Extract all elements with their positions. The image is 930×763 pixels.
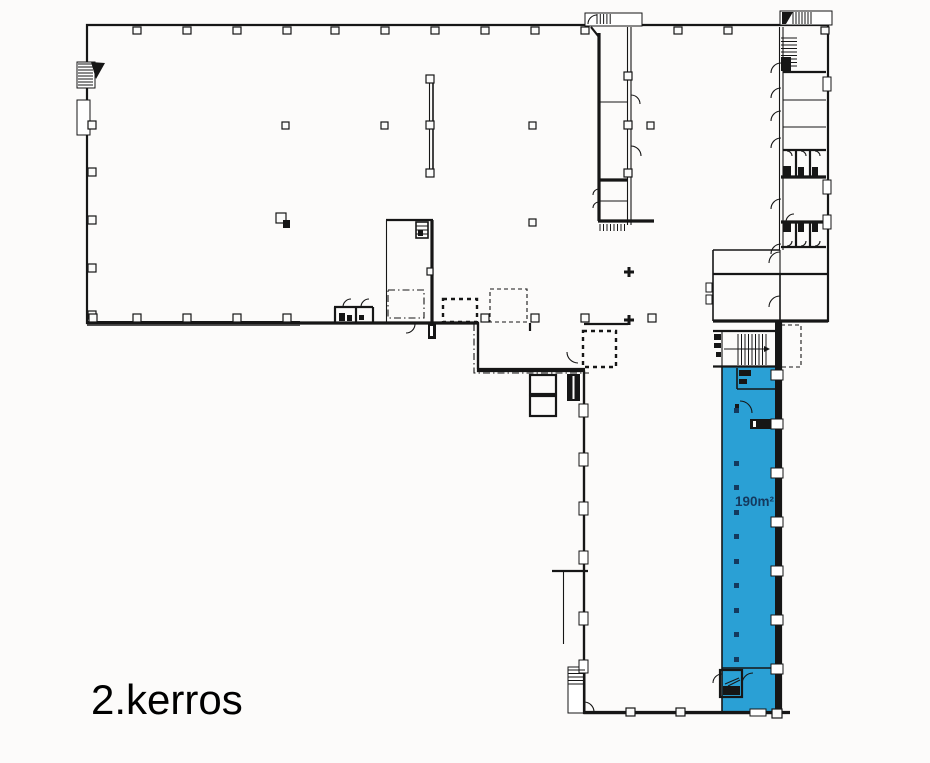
middle-room <box>386 75 436 339</box>
highlighted-unit[interactable] <box>722 367 776 713</box>
elevator-shaft <box>530 396 556 416</box>
window-openings <box>579 77 831 674</box>
building-footprint <box>87 25 828 713</box>
small-rooms-bottom <box>334 299 415 333</box>
floor-label: 2.kerros <box>91 676 243 723</box>
building-outline <box>87 25 828 713</box>
protruding-room <box>474 323 589 416</box>
labels: 190m² 2.kerros <box>91 494 775 723</box>
exterior-stairs <box>77 11 832 713</box>
main-stairwell <box>713 331 780 367</box>
floor-plan-canvas: 190m² 2.kerros <box>0 0 930 763</box>
highlighted-unit-area[interactable] <box>722 367 776 713</box>
structural-columns <box>88 27 829 718</box>
corridor-block <box>591 27 654 225</box>
elevator-shaft <box>530 375 556 394</box>
top-center-stair <box>585 13 642 26</box>
hall-symbols <box>276 213 634 325</box>
wing-top-rooms <box>706 250 828 321</box>
east-rooms <box>780 27 827 250</box>
unit-area-label: 190m² <box>735 494 775 509</box>
dashed-overlays <box>388 289 801 367</box>
floor-plan: 190m² 2.kerros <box>0 0 930 763</box>
stair-treads <box>78 12 811 684</box>
